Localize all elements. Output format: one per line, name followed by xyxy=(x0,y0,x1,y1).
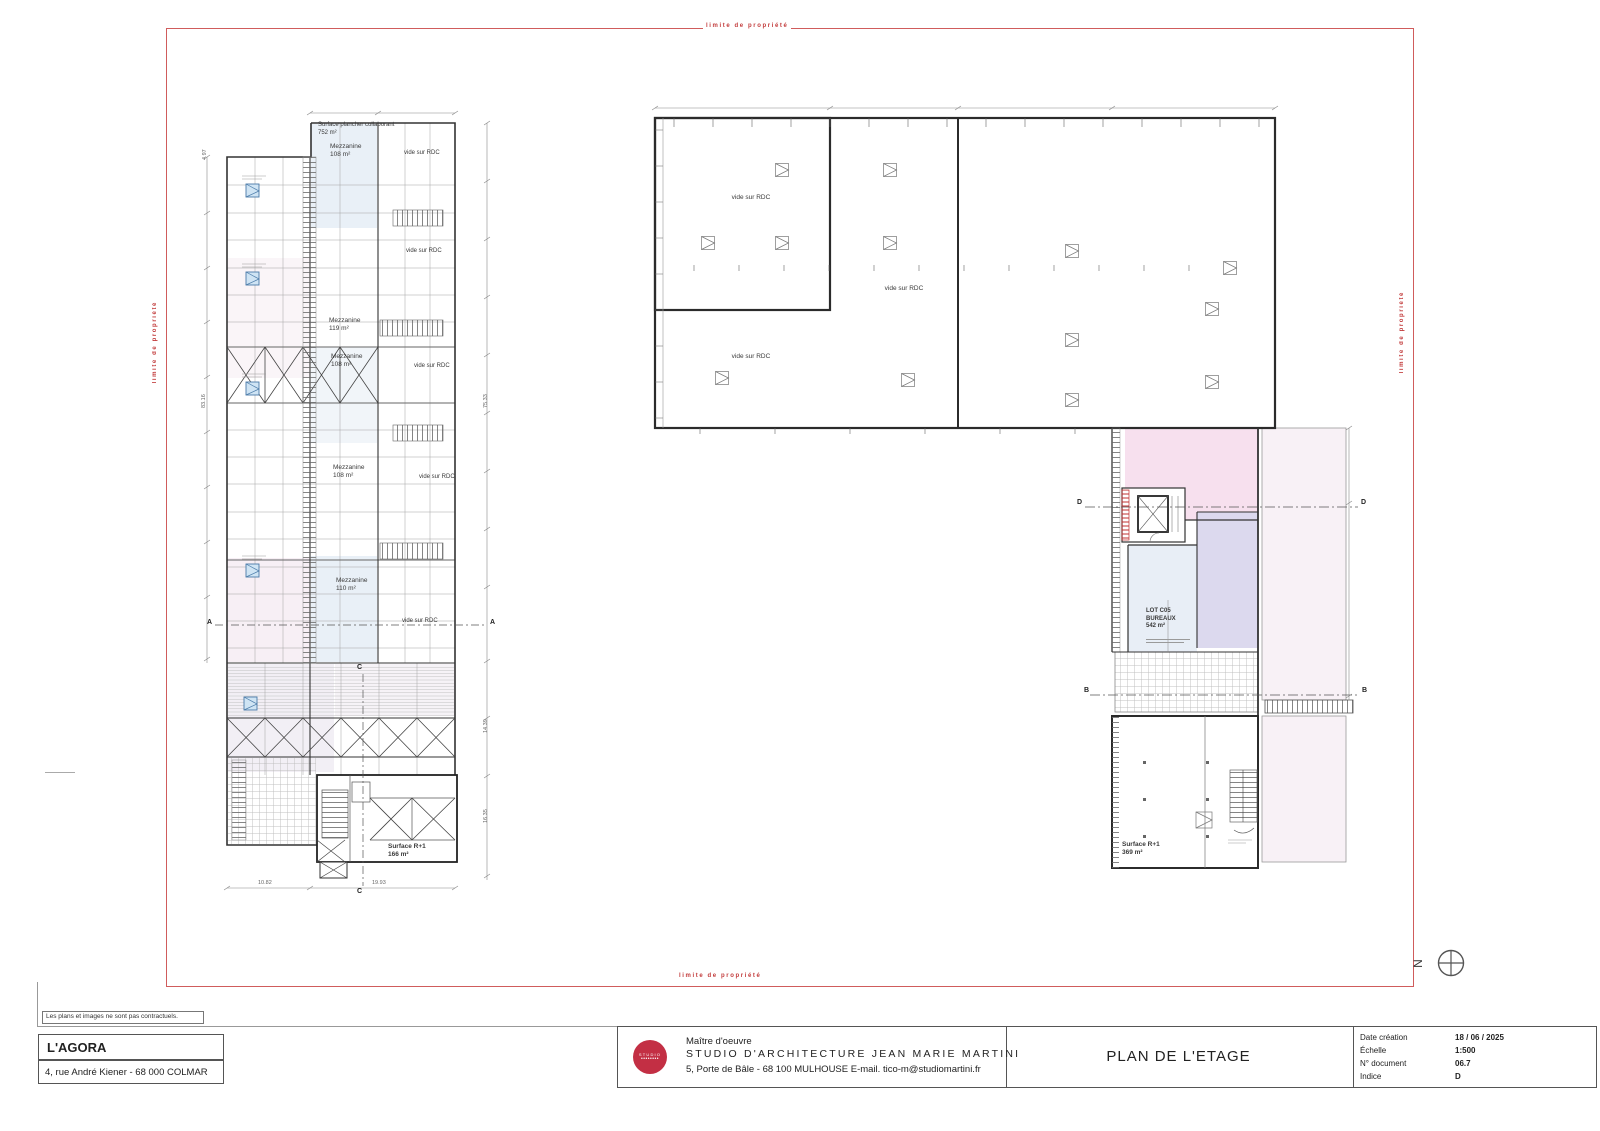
mezzanine-name: Mezzanine xyxy=(333,464,364,472)
project-name: L'AGORA xyxy=(47,1040,106,1056)
lot-c05-bureaux-label: LOT C05 BUREAUX 542 m² xyxy=(1146,608,1176,631)
section-marker-a-right: A xyxy=(490,619,495,626)
left-building-plan xyxy=(190,105,500,910)
surface-r1-right-label: Surface R+1 369 m² xyxy=(1122,841,1160,857)
firm-contact: 5, Porte de Bâle - 68 100 MULHOUSE E-mai… xyxy=(686,1064,981,1076)
meta-value-indice: D xyxy=(1455,1072,1461,1081)
project-name-box: L'AGORA xyxy=(38,1034,224,1060)
vide-sur-rdc-label: vide sur RDC xyxy=(419,474,455,482)
boundary-label-right: limite de propriété xyxy=(1399,288,1405,376)
maitre-doeuvre-label: Maître d'oeuvre xyxy=(686,1036,752,1048)
lot-subtext-line xyxy=(1146,639,1190,640)
dim-83-16: 83.16 xyxy=(201,394,207,408)
right-plan-skylights xyxy=(702,164,1237,407)
drawing-title: PLAN DE L'ETAGE xyxy=(1005,1048,1352,1067)
surface-r1-left-label: Surface R+1 166 m² xyxy=(388,843,426,859)
mezzanine-label-2: Mezzanine 119 m² xyxy=(329,317,360,333)
boundary-label-left: limite de propriété xyxy=(152,298,158,386)
left-plan-stair-strip xyxy=(232,760,246,840)
section-marker-c-bottom: C xyxy=(357,888,362,895)
studio-logo-text: STUDIO xyxy=(633,1040,667,1057)
meta-value-date: 18 / 06 / 2025 xyxy=(1455,1033,1504,1042)
mezzanine-label-3: Mezzanine 108 m² xyxy=(331,353,362,369)
mezzanine-label-1: Mezzanine 108 m² xyxy=(330,143,361,159)
dim-75-33: 75.33 xyxy=(483,394,489,408)
surface-r1-area: 166 m² xyxy=(388,851,426,859)
section-marker-d-left: D xyxy=(1077,499,1082,506)
mezzanine-area: 110 m² xyxy=(336,585,367,593)
mezzanine-name: Mezzanine xyxy=(331,353,362,361)
surface-collaborant-text: Surface plancher collaborant xyxy=(318,122,394,130)
project-address-box: 4, rue André Kiener - 68 000 COLMAR xyxy=(38,1060,224,1084)
mezzanine-label-4: Mezzanine 108 m² xyxy=(333,464,364,480)
lot-number: LOT C05 xyxy=(1146,608,1176,616)
meta-label-document: N° document xyxy=(1360,1059,1406,1068)
mezzanine-name: Mezzanine xyxy=(330,143,361,151)
vide-sur-rdc-label: vide sur RDC xyxy=(406,248,442,256)
meta-label-date: Date création xyxy=(1360,1033,1408,1042)
section-marker-b-left: B xyxy=(1084,687,1089,694)
surface-r1-text: Surface R+1 xyxy=(388,843,426,851)
section-marker-a-left: A xyxy=(207,619,212,626)
right-plan-hall-walls xyxy=(655,118,1275,428)
scanned-floor-plan-sheet: { "sheet": { "boundary_label": "limite d… xyxy=(0,0,1600,1131)
mezzanine-label-5: Mezzanine 110 m² xyxy=(336,577,367,593)
disclaimer-note: Les plans et images ne sont pas contract… xyxy=(42,1011,204,1024)
titleblock-divider-2 xyxy=(1353,1027,1354,1087)
left-plan-stairs xyxy=(380,210,443,559)
meta-value-document: 06.7 xyxy=(1455,1059,1471,1068)
north-arrow-icon xyxy=(1432,946,1468,982)
dim-14-39: 14.39 xyxy=(483,719,489,733)
vide-sur-rdc-label: vide sur RDC xyxy=(732,353,771,361)
mezzanine-area: 108 m² xyxy=(333,472,364,480)
meta-label-indice: Indice xyxy=(1360,1072,1381,1081)
right-building-plan xyxy=(640,100,1360,890)
right-plan-core xyxy=(1122,488,1185,542)
north-letter: N xyxy=(1411,959,1426,968)
meta-value-echelle: 1:500 xyxy=(1455,1046,1475,1055)
vide-sur-rdc-label: vide sur RDC xyxy=(404,150,440,158)
mezzanine-area: 108 m² xyxy=(331,361,362,369)
surface-collaborant-area: 752 m² xyxy=(318,130,394,138)
section-marker-b-right: B xyxy=(1362,687,1367,694)
lot-subtext-line xyxy=(1146,642,1184,643)
sheet-frame-corner-v xyxy=(37,982,38,1026)
boundary-label-top: limite de propriété xyxy=(703,23,791,29)
mezzanine-name: Mezzanine xyxy=(329,317,360,325)
right-plan-terrace xyxy=(1115,652,1258,712)
left-plan-inner-building xyxy=(317,775,457,878)
meta-label-echelle: Échelle xyxy=(1360,1046,1386,1055)
vide-sur-rdc-label: vide sur RDC xyxy=(402,618,438,626)
surface-r1-text: Surface R+1 xyxy=(1122,841,1160,849)
lot-area: 542 m² xyxy=(1146,623,1176,631)
vide-sur-rdc-label: vide sur RDC xyxy=(885,285,924,293)
firm-name: STUDIO D'ARCHITECTURE JEAN MARIE MARTINI xyxy=(686,1048,1020,1061)
studio-logo: STUDIO •••••••• xyxy=(633,1040,667,1074)
dim-19-93: 19.93 xyxy=(372,880,386,886)
mezzanine-area: 108 m² xyxy=(330,151,361,159)
scan-artifact-tick xyxy=(45,772,75,773)
lot-usage: BUREAUX xyxy=(1146,616,1176,624)
dim-4-97: 4.97 xyxy=(202,149,208,160)
dim-10-82: 10.82 xyxy=(258,880,272,886)
mezzanine-name: Mezzanine xyxy=(336,577,367,585)
surface-r1-area: 369 m² xyxy=(1122,849,1160,857)
project-address: 4, rue André Kiener - 68 000 COLMAR xyxy=(45,1067,208,1079)
boundary-label-bottom: limite de propriété xyxy=(676,973,764,979)
vide-sur-rdc-label: vide sur RDC xyxy=(414,363,450,371)
vide-sur-rdc-label: vide sur RDC xyxy=(732,194,771,202)
mezzanine-area: 119 m² xyxy=(329,325,360,333)
dim-16-35: 16.35 xyxy=(483,809,489,823)
surface-collaborant-label: Surface plancher collaborant 752 m² xyxy=(318,122,394,137)
right-plan-walkway xyxy=(1265,700,1353,713)
studio-logo-dots: •••••••• xyxy=(633,1057,667,1061)
left-plan-catwalk xyxy=(303,157,316,663)
section-marker-d-right: D xyxy=(1361,499,1366,506)
section-marker-c-top: C xyxy=(357,664,362,671)
